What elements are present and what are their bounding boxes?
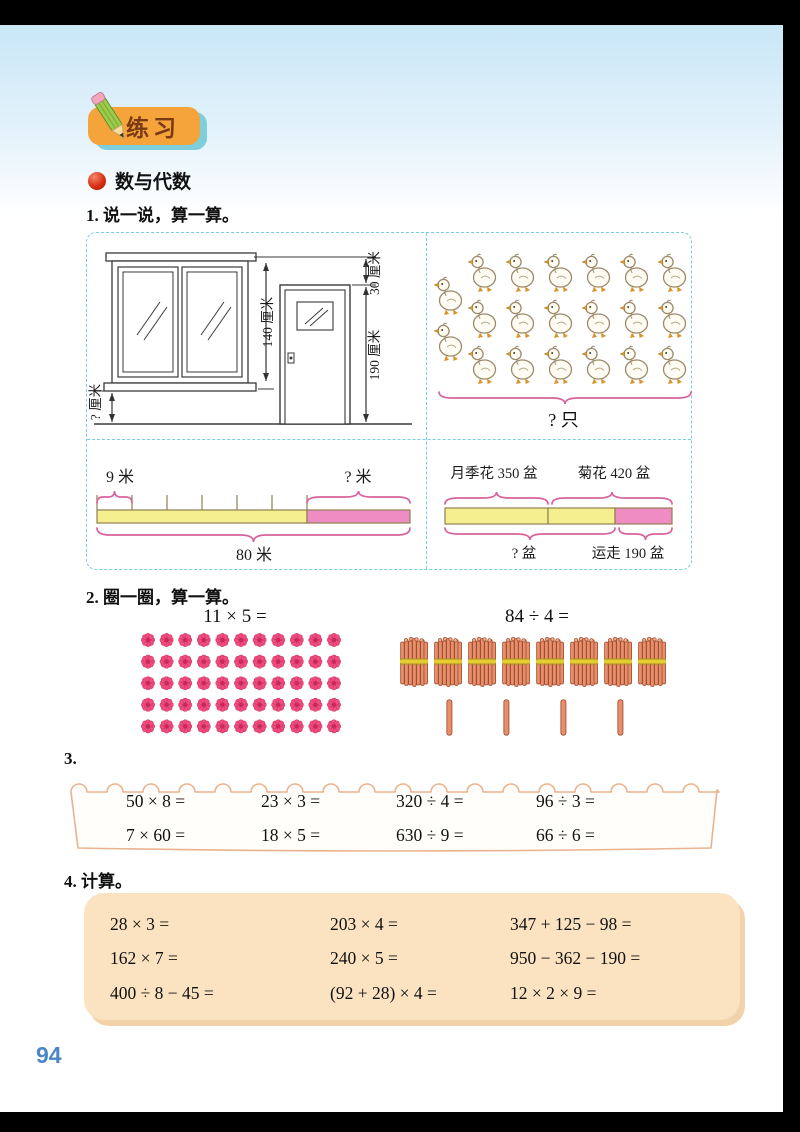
duck-icon — [468, 346, 495, 384]
expression: 50 × 8 = — [126, 791, 261, 812]
arrowhead — [363, 414, 369, 422]
flower-icon — [309, 720, 322, 733]
brace — [97, 491, 132, 503]
sill-height-label: ? 厘米 — [88, 383, 103, 420]
rose-label: 月季花 350 盆 — [451, 465, 538, 482]
expression: 347 + 125 − 98 = — [510, 914, 720, 935]
flower-icon — [141, 633, 154, 646]
door-height-label: 190 厘米 — [367, 329, 382, 380]
duck-icon — [658, 300, 685, 338]
flower-icon — [290, 655, 303, 668]
rope-yellow-segment — [97, 510, 307, 523]
flower-icon — [271, 633, 284, 646]
expression: 28 × 3 = — [110, 914, 330, 935]
flower-bar-yellow1 — [445, 508, 548, 524]
flower-icon — [234, 720, 247, 733]
arrowhead — [109, 393, 115, 401]
bottom-black-bar — [0, 1112, 800, 1132]
section-title: 数与代数 — [115, 167, 191, 194]
flower-grid — [140, 632, 345, 740]
expression: 12 × 2 × 9 = — [510, 983, 720, 1004]
arrowhead — [109, 414, 115, 422]
expression: 23 × 3 = — [261, 791, 396, 812]
stick-icon — [561, 700, 566, 735]
section-header: 数与代数 — [88, 167, 191, 194]
bundle-icon — [536, 637, 565, 686]
duck-icon — [506, 346, 533, 384]
flower-icon — [160, 720, 173, 733]
flower-icon — [253, 720, 266, 733]
expression: 96 ÷ 3 = — [536, 791, 674, 812]
problem3-expressions: 50 × 8 = 23 × 3 = 320 ÷ 4 = 96 ÷ 3 = 7 ×… — [126, 784, 674, 852]
flower-icon — [271, 655, 284, 668]
duck-icon — [544, 300, 571, 338]
bundle-icon — [502, 637, 531, 686]
expression: 66 ÷ 6 = — [536, 825, 674, 846]
stick-bundles — [400, 637, 668, 737]
duck-icon — [544, 346, 571, 384]
flower-icon — [160, 655, 173, 668]
duck-icon — [506, 300, 533, 338]
expression: 18 × 5 = — [261, 825, 396, 846]
flower-icon — [327, 655, 340, 668]
right-black-bar — [783, 0, 800, 1132]
duck-icon — [434, 323, 461, 361]
flower-icon — [178, 676, 191, 689]
flower-icon — [234, 698, 247, 711]
duck-icon — [658, 346, 685, 384]
duck-icon — [658, 254, 685, 292]
ducks-picture — [432, 250, 694, 392]
bundle-icon — [400, 637, 429, 686]
expression: (92 + 28) × 4 = — [330, 983, 510, 1004]
window-drawing — [104, 253, 256, 391]
flower-question-label: ? 盆 — [512, 545, 537, 562]
ducks-question: ? 只 — [425, 406, 702, 432]
page-number: 94 — [36, 1042, 62, 1069]
panel-divider-horizontal — [87, 439, 691, 440]
rope-bar-diagram: 9 米 ? 米 80 米 — [92, 446, 414, 568]
expression: 400 ÷ 8 − 45 = — [110, 983, 330, 1004]
flower-icon — [178, 655, 191, 668]
window-height-label: 140 厘米 — [260, 296, 275, 347]
flower-icon — [327, 633, 340, 646]
bundle-icon — [434, 637, 463, 686]
room-measure-diagram: 140 厘米 30 厘米 190 厘米 ? 厘米 — [92, 240, 418, 430]
flower-icon — [160, 698, 173, 711]
expression: 162 × 7 = — [110, 948, 330, 969]
duck-icon — [620, 254, 647, 292]
arrowhead — [263, 373, 269, 381]
flower-icon — [327, 698, 340, 711]
stick-icon — [618, 700, 623, 735]
duck-icon — [468, 254, 495, 292]
bundle-icon — [604, 637, 633, 686]
flower-bar-diagram: 月季花 350 盆 菊花 420 盆 ? 盆 运走 190 盆 — [436, 450, 682, 566]
textbook-page: 练习 数与代数 1. 说一说，算一算。 — [0, 0, 800, 1132]
duck-icon — [582, 346, 609, 384]
stick-icon — [504, 700, 509, 735]
flower-icon — [234, 655, 247, 668]
flower-icon — [160, 676, 173, 689]
problem4-title: 4. 计算。 — [64, 867, 132, 892]
rope-pink-segment — [307, 510, 410, 523]
flower-icon — [253, 698, 266, 711]
red-sphere-icon — [88, 172, 106, 190]
duck-icon — [434, 277, 461, 315]
flower-icon — [253, 655, 266, 668]
bundle-icon — [468, 637, 497, 686]
flower-icon — [216, 655, 229, 668]
expression: 7 × 60 = — [126, 825, 261, 846]
brace — [97, 528, 410, 542]
stick-icon — [447, 700, 452, 735]
duck-icon — [544, 254, 571, 292]
flower-icon — [253, 633, 266, 646]
flower-icon — [197, 698, 210, 711]
bundle-icon — [570, 637, 599, 686]
expression: 630 ÷ 9 = — [396, 825, 536, 846]
top-black-bar — [0, 0, 800, 25]
flower-icon — [253, 676, 266, 689]
brace — [619, 528, 672, 540]
flower-icon — [197, 633, 210, 646]
door-drawing — [280, 285, 350, 424]
flower-icon — [178, 633, 191, 646]
flower-icon — [234, 633, 247, 646]
flower-icon — [178, 720, 191, 733]
chrysanthemum-label: 菊花 420 盆 — [578, 465, 651, 482]
pencil-icon — [86, 85, 132, 145]
flower-icon — [271, 720, 284, 733]
problem1-title: 1. 说一说，算一算。 — [86, 201, 239, 226]
flower-icon — [197, 655, 210, 668]
flower-bar-pink — [615, 508, 672, 524]
expression: 203 × 4 = — [330, 914, 510, 935]
brace — [552, 492, 672, 504]
flower-icon — [271, 698, 284, 711]
flower-icon — [271, 676, 284, 689]
practice-tab: 练习 — [88, 107, 200, 145]
rope-first-segment-label: 9 米 — [106, 468, 134, 486]
flower-bar-yellow2 — [548, 508, 615, 524]
panel-divider-vertical — [426, 233, 427, 569]
flower-icon — [234, 676, 247, 689]
flower-icon — [197, 676, 210, 689]
flower-icon — [290, 698, 303, 711]
expression: 950 − 362 − 190 = — [510, 948, 720, 969]
expression: 320 ÷ 4 = — [396, 791, 536, 812]
problem2-right-expression: 84 ÷ 4 = — [462, 606, 612, 628]
flower-icon — [290, 720, 303, 733]
flower-icon — [309, 655, 322, 668]
duck-icon — [582, 300, 609, 338]
problem2-left-expression: 11 × 5 = — [160, 606, 310, 628]
flower-icon — [141, 720, 154, 733]
flower-icon — [327, 720, 340, 733]
duck-icon — [582, 254, 609, 292]
duck-icon — [620, 300, 647, 338]
flower-icon — [216, 698, 229, 711]
flower-icon — [327, 676, 340, 689]
flower-icon — [160, 633, 173, 646]
flower-icon — [197, 720, 210, 733]
gap-height-label: 30 厘米 — [367, 251, 382, 295]
duck-icon — [468, 300, 495, 338]
problem2-title: 2. 圈一圈，算一算。 — [86, 583, 239, 608]
flower-icon — [309, 633, 322, 646]
flower-icon — [290, 633, 303, 646]
brace — [307, 491, 410, 503]
rope-unknown-label: ? 米 — [344, 468, 371, 486]
flower-icon — [178, 698, 191, 711]
flower-removed-label: 运走 190 盆 — [592, 545, 665, 562]
arrowhead — [263, 263, 269, 271]
duck-icon — [620, 346, 647, 384]
flower-icon — [141, 698, 154, 711]
brace — [445, 492, 548, 504]
rope-total-label: 80 米 — [236, 546, 272, 564]
problem4-expressions: 28 × 3 = 203 × 4 = 347 + 125 − 98 = 162 … — [110, 907, 720, 1011]
flower-icon — [216, 676, 229, 689]
expression: 240 × 5 = — [330, 948, 510, 969]
brace — [439, 392, 691, 404]
flower-icon — [141, 676, 154, 689]
brace — [445, 528, 615, 540]
flower-icon — [309, 698, 322, 711]
flower-icon — [309, 676, 322, 689]
flower-icon — [216, 633, 229, 646]
flower-icon — [216, 720, 229, 733]
flower-icon — [290, 676, 303, 689]
bundle-icon — [638, 637, 667, 686]
duck-icon — [506, 254, 533, 292]
flower-icon — [141, 655, 154, 668]
